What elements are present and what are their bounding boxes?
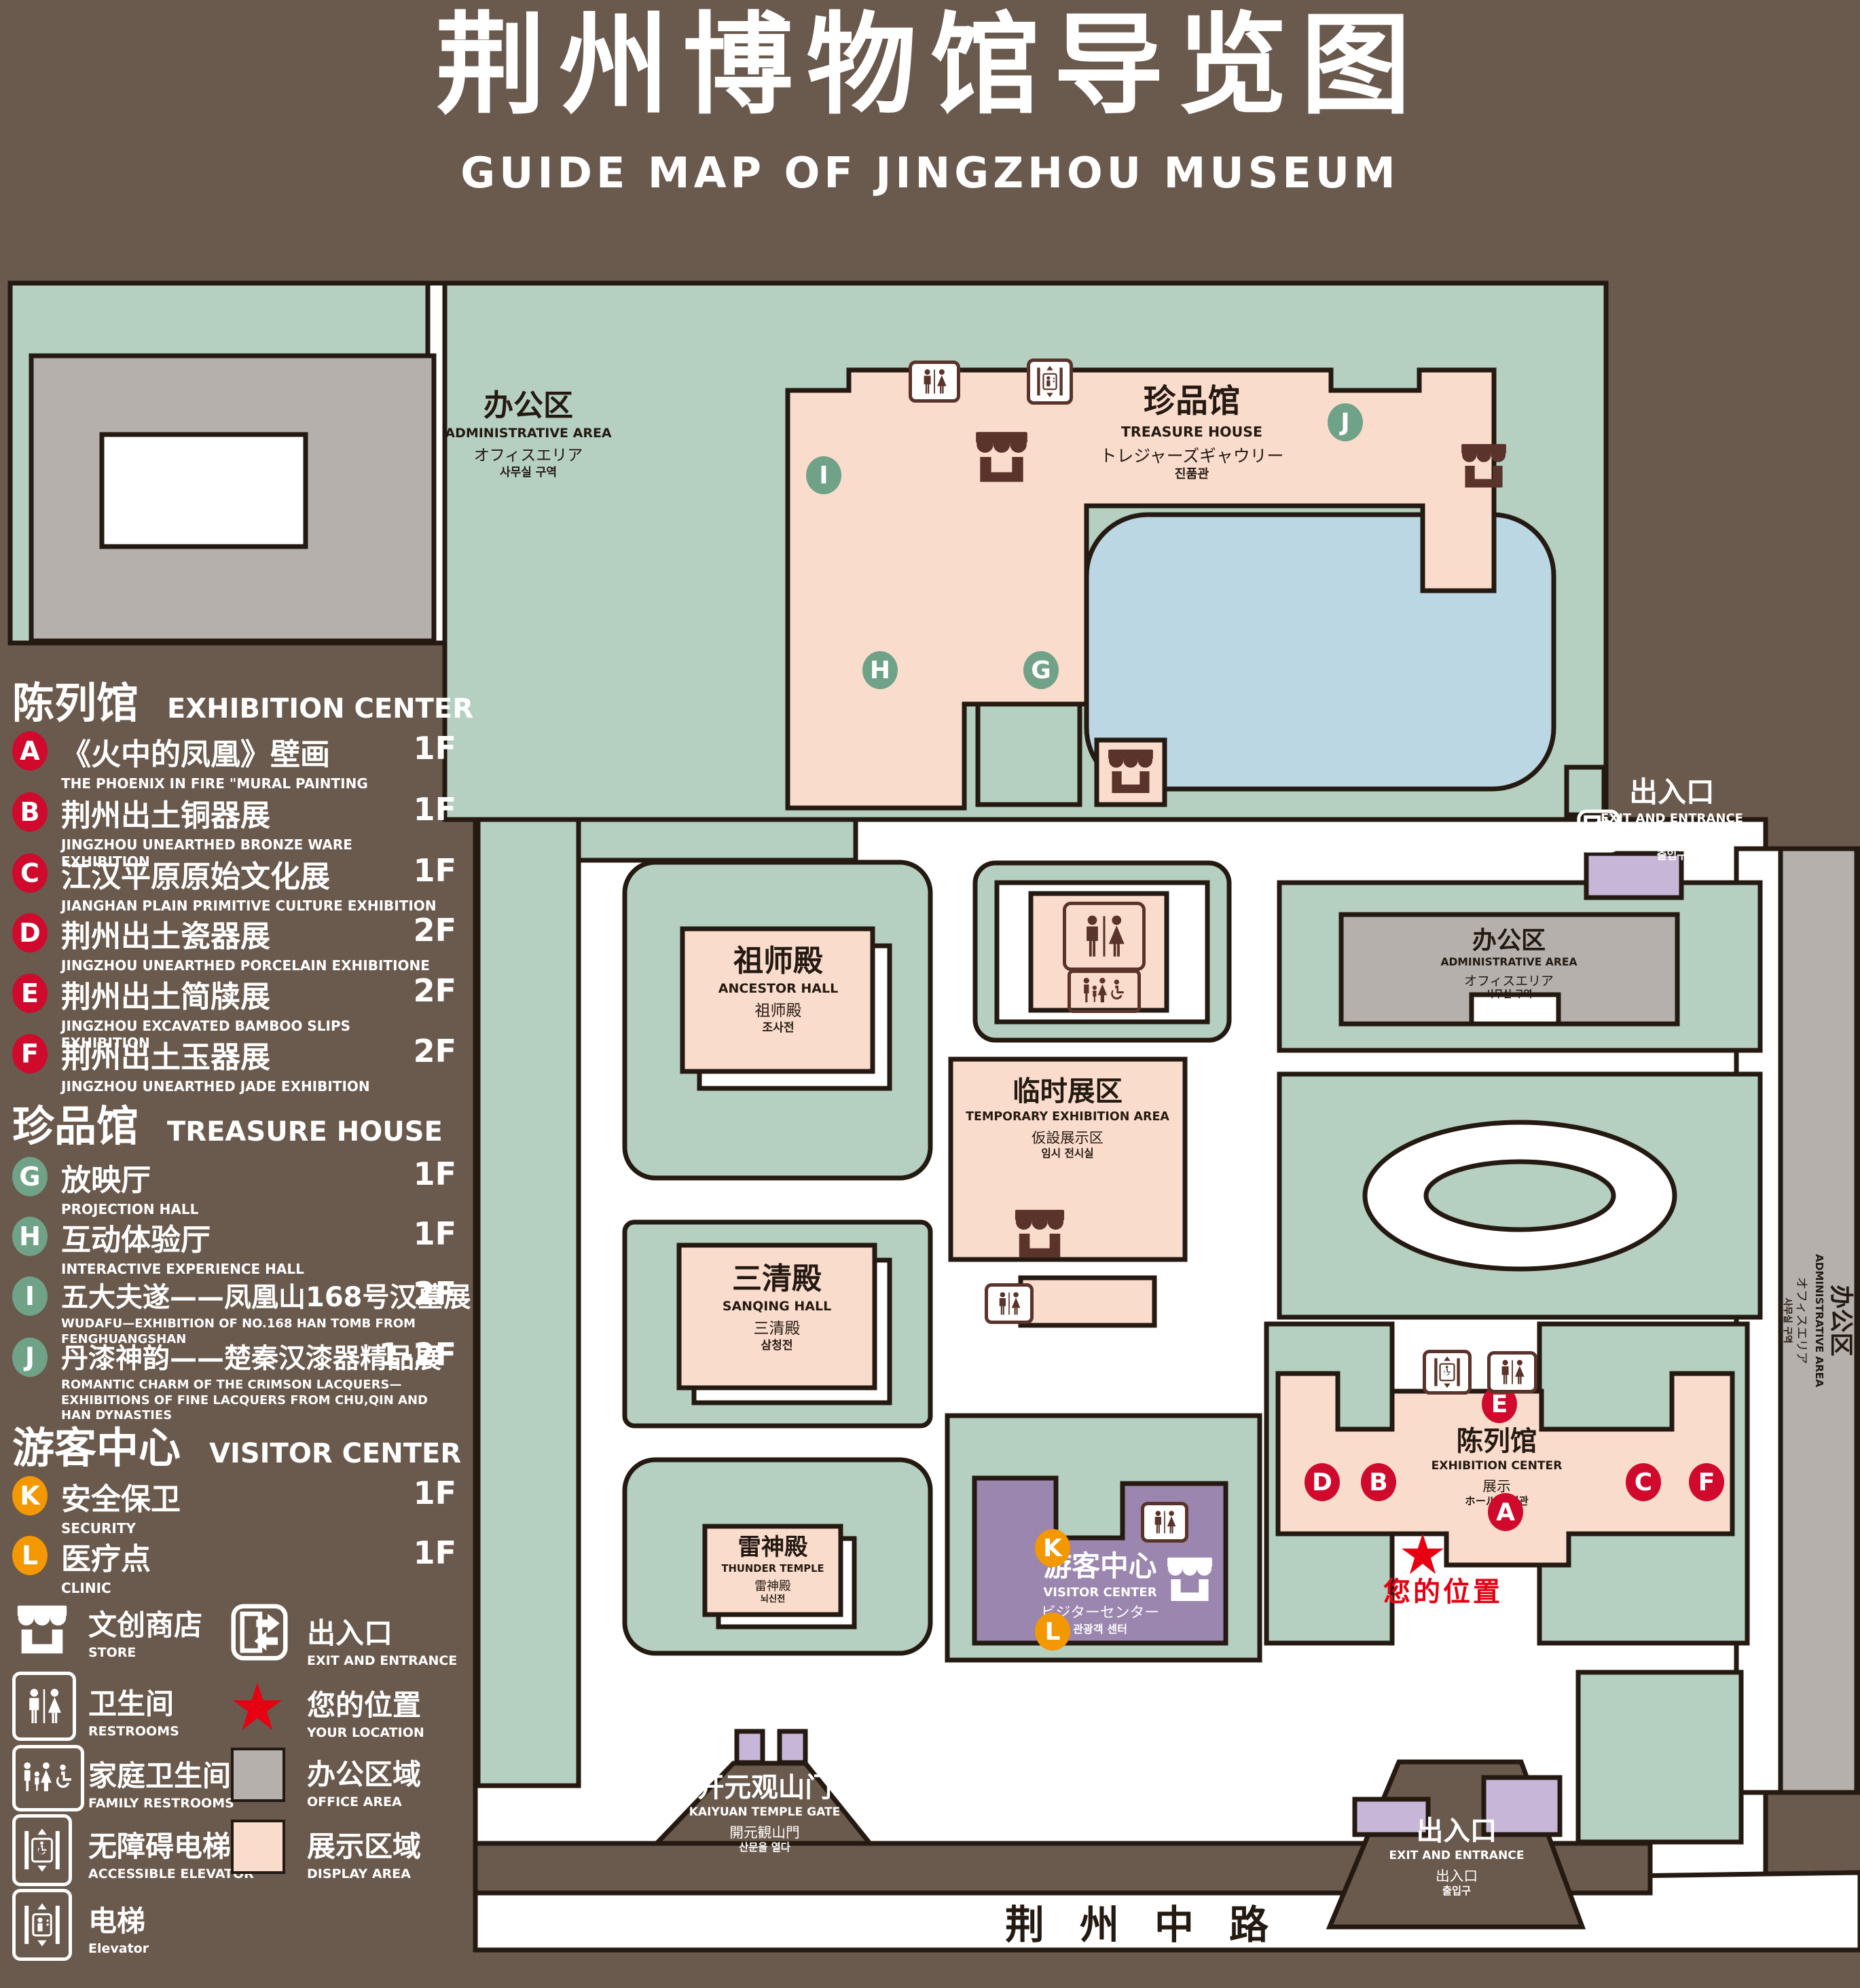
legend-symbol-display-area: 展示区域 DISPLAY AREA (231, 1820, 421, 1881)
legend-symbol-exit: 出入口 EXIT AND ENTRANCE (231, 1604, 457, 1668)
office-area-swatch (231, 1748, 285, 1802)
plot-under-treasure (978, 704, 1080, 805)
store-icon (1457, 441, 1511, 490)
legend-symbol-accessible-elevator: 无障碍电梯 ACCESSIBLE ELEVATOR (12, 1814, 254, 1881)
legend-item-K: K 安全保卫 SECURITY 1F (12, 1475, 469, 1537)
label-admin-top: 办公区 ADMINISTRATIVE AREA オフィスエリア 사무실 구역 (445, 387, 611, 481)
marker-A: A (1488, 1493, 1523, 1531)
legend-symbol-office-area: 办公区域 OFFICE AREA (231, 1748, 421, 1809)
legend-header-visitor: 游客中心VISITOR CENTER (12, 1414, 461, 1475)
legend-symbol-your-location: 您的位置 YOUR LOCATION (231, 1677, 424, 1740)
restroom-icon (1141, 1502, 1188, 1543)
legend-item-H: H 互动体验厅 INTERACTIVE EXPERIENCE HALL 1F (12, 1215, 469, 1278)
legend-item-D: D 荆州出土瓷器展 JINGZHOU UNEARTHED PORCELAIN E… (12, 912, 469, 974)
admin-top-courtyard (102, 435, 306, 547)
accessible-elevator-icon (1423, 1350, 1472, 1395)
restroom-icon (12, 1672, 76, 1741)
legend-item-F: F 荆州出土玉器展 JINGZHOU UNEARTHED JADE EXHIBI… (12, 1033, 469, 1095)
label-ancestor: 祖师殿 ANCESTOR HALL 祖师殿 조사전 (718, 942, 838, 1036)
legend-item-L: L 医疗点 CLINIC 1F (12, 1534, 469, 1597)
gate-pillar-left (737, 1731, 763, 1763)
plot-left-strip (478, 820, 579, 1786)
elevator-icon (1027, 358, 1073, 405)
marker-D: D (1305, 1463, 1340, 1501)
legend-header-exhibition: 陈列馆EXHIBITION CENTER (12, 669, 473, 730)
restroom-icon (1063, 902, 1146, 971)
accessible-elevator-icon (12, 1814, 72, 1886)
label-treasure: 珍品馆 TREASURE HOUSE トレジャーズギャウリー 진품관 (1100, 382, 1284, 483)
label-sanqing: 三清殿 SANQING HALL 三清殿 삼청전 (723, 1260, 831, 1354)
label-admin-right: 办公区 ADMINISTRATIVE AREA オフィスエリア 사무실 구역 (1781, 1254, 1856, 1387)
legend-item-C: C 江汉平原原始文化展 JIANGHAN PLAIN PRIMITIVE CUL… (12, 852, 469, 915)
legend-symbol-store: 文创商店 STORE (12, 1602, 202, 1660)
label-exit-top: 出入口 EXIT AND ENTRANCE 出入口 출입구 (1601, 774, 1743, 863)
legend-symbol-restroom: 卫生间 RESTROOMS (12, 1672, 179, 1739)
legend-item-A: A 《火中的凤凰》壁画 THE PHOENIX IN FIRE "MURAL P… (12, 730, 469, 792)
family-restroom-icon (1068, 970, 1141, 1013)
restroom-icon (1487, 1351, 1537, 1393)
legend-item-J: J 丹漆神韵——楚秦汉漆器精品展 ROMANTIC CHARM OF THE C… (12, 1336, 469, 1424)
label-thunder: 雷神殿 THUNDER TEMPLE 雷神殿 뇌신전 (721, 1533, 824, 1606)
store-icon (1163, 1555, 1217, 1604)
plot-bottom-right (1578, 1672, 1741, 1842)
marker-L: L (1035, 1613, 1070, 1651)
legend-symbol-family-restroom: 家庭卫生间 FAMILY RESTROOMS (12, 1745, 234, 1811)
store-icon (970, 429, 1033, 485)
label-temporary: 临时展区 TEMPORARY EXHIBITION AREA 仮設展示区 임시 … (966, 1074, 1169, 1160)
garden-island (1426, 1162, 1613, 1230)
label-admin-mid: 办公区 ADMINISTRATIVE AREA オフィスエリア 사무실 구역 (1440, 925, 1577, 1001)
family-restroom-icon (12, 1745, 84, 1811)
marker-K: K (1035, 1529, 1070, 1567)
store-icon (1010, 1207, 1070, 1260)
legend-symbol-elevator: 电梯 Elevator (12, 1889, 149, 1956)
marker-H: H (862, 651, 898, 689)
label-exit-bottom: 出入口 EXIT AND ENTRANCE 出入口 출입구 (1389, 1814, 1524, 1898)
plot-exit-patch (1567, 767, 1604, 815)
marker-F: F (1689, 1463, 1724, 1501)
restroom-icon (985, 1283, 1034, 1324)
label-gate-kaiyuan: 开元观山门 KAIYUAN TEMPLE GATE 開元観山門 산문을 열다 (689, 1771, 841, 1855)
store-icon (12, 1602, 72, 1657)
legend-header-treasure: 珍品馆TREASURE HOUSE (12, 1092, 443, 1153)
display-area-swatch (231, 1820, 285, 1874)
elevator-icon (12, 1889, 72, 1961)
marker-B: B (1361, 1463, 1396, 1501)
marker-I: I (806, 456, 841, 494)
location-star-icon (231, 1682, 284, 1733)
label-road: 荆州中路 (1005, 1893, 1304, 1950)
marker-G: G (1023, 651, 1059, 689)
marker-J: J (1328, 403, 1363, 441)
legend-item-G: G 放映厅 PROJECTION HALL 1F (12, 1156, 469, 1218)
exit-icon (1577, 809, 1620, 853)
store-icon (1104, 747, 1158, 796)
gate-pillar-right (780, 1731, 805, 1763)
guide-map-page: 荆州博物馆导览图 GUIDE MAP OF JINGZHOU MUSEUM (0, 0, 1860, 1988)
building-temporary-annex (1021, 1278, 1154, 1325)
location-star-icon (1400, 1533, 1445, 1577)
marker-C: C (1626, 1463, 1661, 1501)
exit-icon (231, 1604, 288, 1661)
restroom-icon (909, 361, 960, 403)
